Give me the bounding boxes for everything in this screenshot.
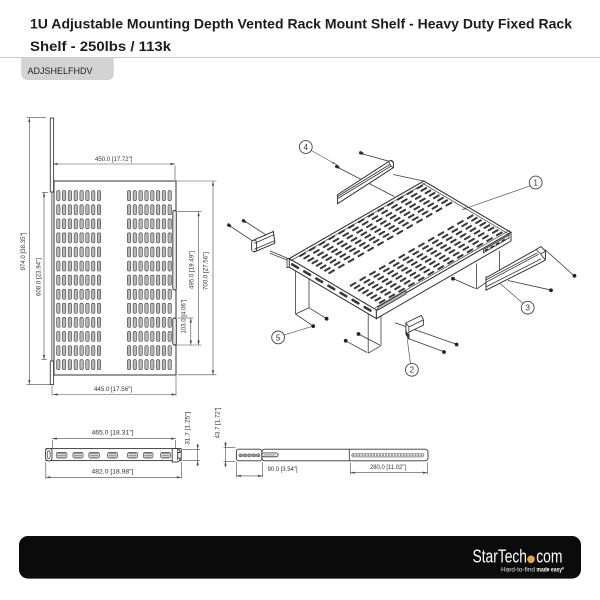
svg-text:450.0 [17.72"]: 450.0 [17.72"] xyxy=(95,156,133,163)
svg-text:445.0 [17.56"]: 445.0 [17.56"] xyxy=(94,386,132,393)
svg-text:103.0 [4.06"]: 103.0 [4.06"] xyxy=(181,299,188,333)
svg-text:1U Adjustable Mounting Depth V: 1U Adjustable Mounting Depth Vented Rack… xyxy=(30,16,572,31)
svg-text:1: 1 xyxy=(533,178,538,187)
svg-text:ADJSHELFHDV: ADJSHELFHDV xyxy=(28,66,94,76)
svg-text:3: 3 xyxy=(525,304,530,313)
svg-text:Shelf - 250lbs / 113k: Shelf - 250lbs / 113k xyxy=(30,39,171,54)
svg-text:com: com xyxy=(536,545,562,566)
svg-text:974.0 [38.35"]: 974.0 [38.35"] xyxy=(20,232,27,270)
svg-text:made easy*: made easy* xyxy=(537,567,565,574)
svg-text:482.0 [18.98"]: 482.0 [18.98"] xyxy=(92,469,134,476)
svg-text:StarTech: StarTech xyxy=(473,545,528,566)
svg-text:495.0 [19.49"]: 495.0 [19.49"] xyxy=(189,251,196,289)
svg-text:4: 4 xyxy=(304,143,309,152)
svg-text:608.0 [23.94"]: 608.0 [23.94"] xyxy=(36,258,43,296)
svg-text:280.0 [11.02"]: 280.0 [11.02"] xyxy=(370,464,406,471)
svg-text:90.0 [3.54"]: 90.0 [3.54"] xyxy=(268,466,298,473)
svg-text:2: 2 xyxy=(410,366,415,375)
svg-text:31.7 [1.25"]: 31.7 [1.25"] xyxy=(184,412,191,445)
svg-text:465.0 [18.31"]: 465.0 [18.31"] xyxy=(92,430,134,437)
svg-text:5: 5 xyxy=(276,333,281,342)
svg-text:700.0 [27.56"]: 700.0 [27.56"] xyxy=(202,252,209,290)
svg-text:43.7 [1.72"]: 43.7 [1.72"] xyxy=(215,407,222,438)
svg-text:Hard-to-find: Hard-to-find xyxy=(501,567,536,574)
